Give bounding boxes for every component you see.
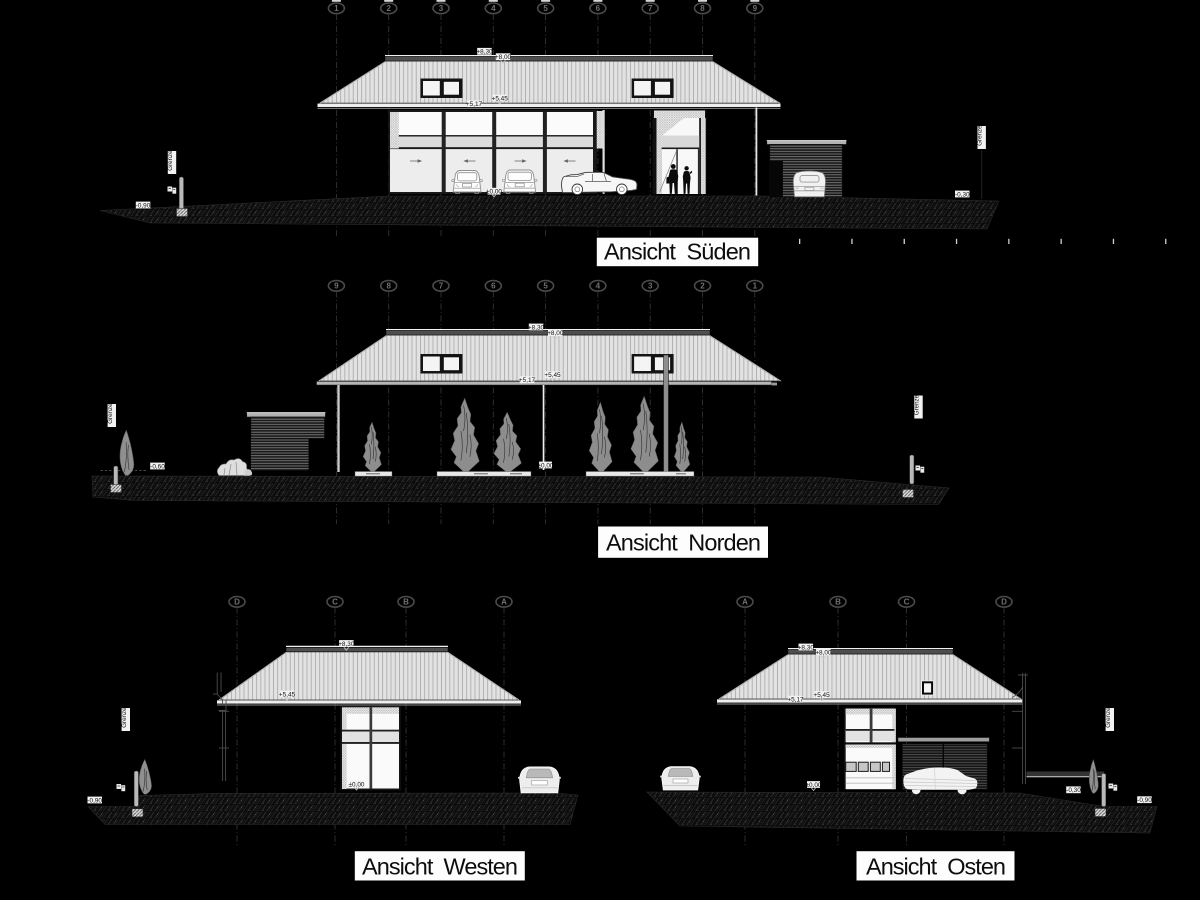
svg-text:C: C: [332, 598, 338, 607]
svg-text:2: 2: [386, 4, 391, 13]
svg-text:Ansicht Osten: Ansicht Osten: [866, 854, 1006, 880]
svg-text:Ansicht Süden: Ansicht Süden: [604, 239, 751, 265]
svg-text:4: 4: [596, 282, 601, 291]
svg-text:+5,45: +5,45: [814, 692, 831, 699]
svg-text:C: C: [904, 598, 910, 607]
svg-text:+5,17: +5,17: [466, 101, 483, 108]
svg-text:+5,17: +5,17: [519, 377, 536, 384]
svg-text:+8,00: +8,00: [547, 330, 564, 337]
svg-text:1: 1: [334, 4, 339, 13]
svg-text:3: 3: [439, 4, 444, 13]
svg-text:1: 1: [753, 282, 758, 291]
svg-text:-0,90: -0,90: [136, 202, 151, 209]
svg-text:±0,00: ±0,00: [349, 781, 365, 788]
svg-text:2: 2: [700, 282, 705, 291]
svg-text:-0,90: -0,90: [1137, 797, 1152, 804]
svg-text:Grenze: Grenze: [167, 150, 174, 171]
svg-text:±0,00: ±0,00: [486, 189, 502, 196]
svg-text:6: 6: [596, 4, 601, 13]
svg-text:-0,90: -0,90: [87, 797, 102, 804]
svg-text:±0,00: ±0,00: [538, 462, 554, 469]
svg-text:+5,45: +5,45: [492, 95, 509, 102]
svg-text:Grenze: Grenze: [107, 403, 114, 424]
svg-text:D: D: [1001, 598, 1007, 607]
svg-text:Grenze: Grenze: [977, 125, 984, 146]
svg-text:+5,17: +5,17: [787, 697, 804, 704]
svg-text:+8,00: +8,00: [495, 54, 512, 61]
svg-text:A: A: [742, 598, 748, 607]
svg-text:+5,45: +5,45: [279, 691, 296, 698]
svg-text:+8,00: +8,00: [815, 649, 832, 656]
svg-text:+5,45: +5,45: [544, 372, 561, 379]
svg-text:7: 7: [439, 282, 444, 291]
svg-text:+8,30: +8,30: [798, 644, 815, 651]
svg-text:8: 8: [700, 4, 705, 13]
svg-text:B: B: [403, 598, 409, 607]
svg-text:-0,60: -0,60: [150, 463, 165, 470]
svg-text:5: 5: [543, 282, 548, 291]
svg-text:4: 4: [491, 4, 496, 13]
svg-text:3: 3: [648, 282, 653, 291]
svg-text:B: B: [835, 598, 841, 607]
svg-text:9: 9: [334, 282, 339, 291]
svg-text:±0,00: ±0,00: [806, 782, 822, 789]
svg-text:7: 7: [648, 4, 653, 13]
svg-text:Ansicht Westen: Ansicht Westen: [362, 854, 518, 880]
svg-text:-0,30: -0,30: [1066, 787, 1081, 794]
svg-text:8: 8: [386, 282, 391, 291]
svg-text:Grenze: Grenze: [121, 707, 128, 728]
svg-text:Grenze: Grenze: [1105, 707, 1112, 728]
svg-text:+8,30: +8,30: [338, 641, 355, 648]
svg-text:D: D: [234, 598, 240, 607]
svg-text:-0,30: -0,30: [955, 191, 970, 198]
svg-text:5: 5: [543, 4, 548, 13]
svg-text:Grenze: Grenze: [914, 394, 921, 415]
svg-text:+8,30: +8,30: [528, 324, 545, 331]
svg-text:+8,30: +8,30: [476, 49, 493, 56]
svg-text:A: A: [501, 598, 507, 607]
svg-text:6: 6: [491, 282, 496, 291]
svg-text:9: 9: [753, 4, 758, 13]
svg-text:Ansicht Norden: Ansicht Norden: [606, 530, 761, 556]
